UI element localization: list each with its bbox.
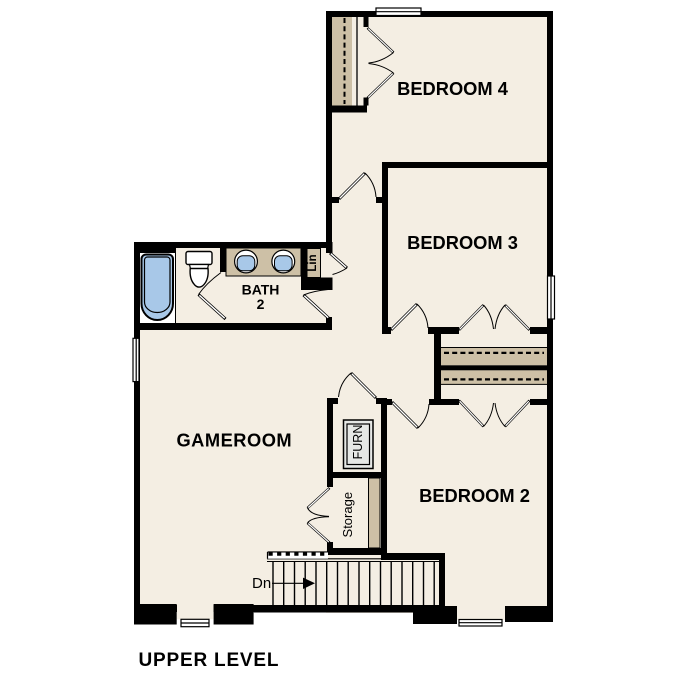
svg-text:Storage: Storage <box>340 492 355 538</box>
svg-text:Lin: Lin <box>307 254 319 271</box>
svg-text:UPPER LEVEL: UPPER LEVEL <box>139 650 280 671</box>
svg-text:BEDROOM 2: BEDROOM 2 <box>419 485 530 506</box>
svg-text:GAMEROOM: GAMEROOM <box>176 430 292 451</box>
svg-text:Dn: Dn <box>252 575 271 592</box>
svg-text:BEDROOM 4: BEDROOM 4 <box>397 78 509 99</box>
svg-text:2: 2 <box>257 296 265 312</box>
svg-text:FURN: FURN <box>351 425 365 460</box>
svg-text:BEDROOM 3: BEDROOM 3 <box>407 232 518 253</box>
